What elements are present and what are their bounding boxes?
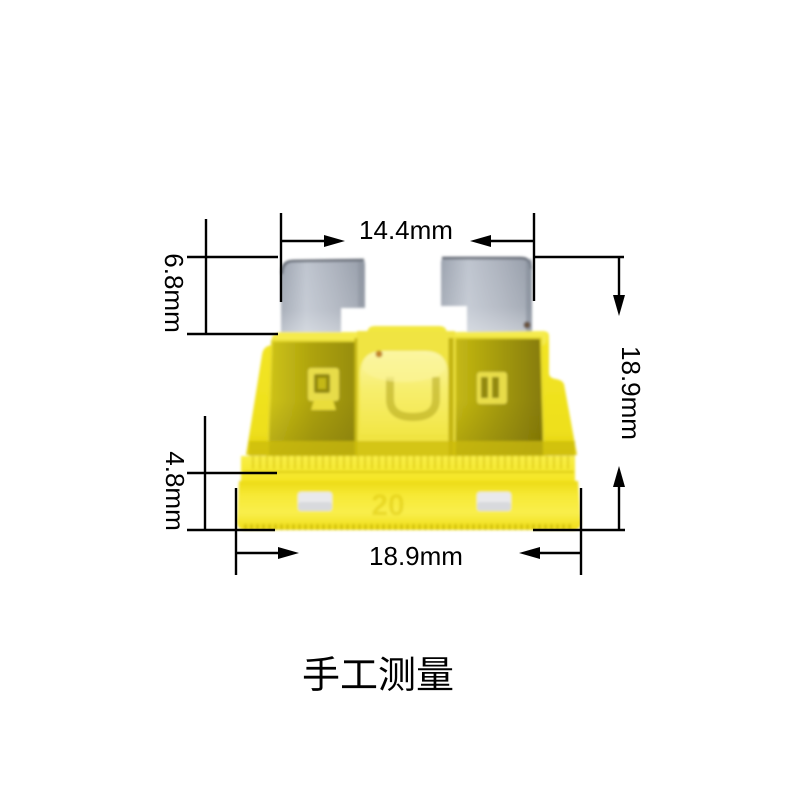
svg-text:20: 20	[371, 489, 404, 522]
svg-text:14.4mm: 14.4mm	[359, 215, 453, 245]
svg-text:4.8mm: 4.8mm	[160, 451, 190, 530]
svg-text:6.8mm: 6.8mm	[159, 253, 189, 332]
svg-text:18.9mm: 18.9mm	[369, 541, 463, 571]
svg-text:18.9mm: 18.9mm	[616, 346, 646, 440]
